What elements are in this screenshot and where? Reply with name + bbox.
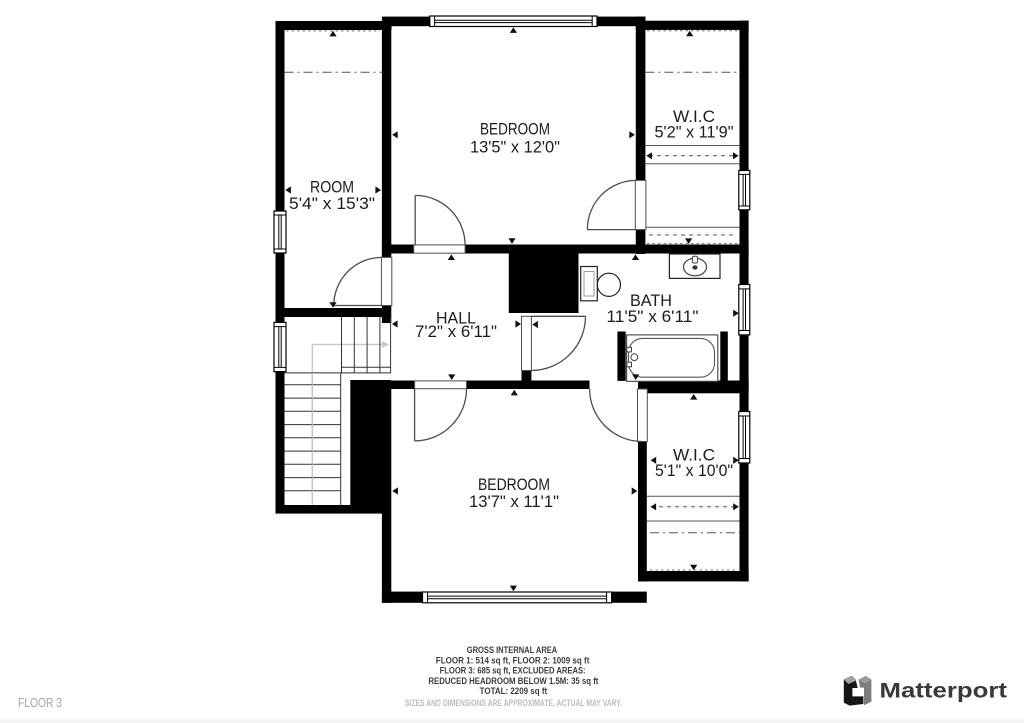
svg-text:ROOM: ROOM [310,179,354,197]
svg-text:5'2" x 11'9": 5'2" x 11'9" [655,124,734,142]
svg-text:FLOOR 3: 685 sq ft, EXCLUDED A: FLOOR 3: 685 sq ft, EXCLUDED AREAS: [440,666,586,676]
svg-text:11'5" x 6'11": 11'5" x 6'11" [607,308,699,326]
svg-text:5'4" x 15'3": 5'4" x 15'3" [289,195,375,213]
svg-text:SIZES AND DIMENSIONS ARE APPRO: SIZES AND DIMENSIONS ARE APPROXIMATE, AC… [405,698,622,708]
svg-text:FLOOR 3: FLOOR 3 [18,696,62,710]
svg-text:BEDROOM: BEDROOM [478,476,550,494]
svg-text:REDUCED HEADROOM BELOW 1.5M: 3: REDUCED HEADROOM BELOW 1.5M: 35 sq ft [428,676,598,686]
svg-text:FLOOR 1: 514 sq ft, FLOOR 2: 1: FLOOR 1: 514 sq ft, FLOOR 2: 1009 sq ft [436,655,590,665]
svg-text:5'1" x 10'0": 5'1" x 10'0" [655,462,733,480]
svg-text:GROSS INTERNAL AREA: GROSS INTERNAL AREA [467,645,558,655]
svg-text:7'2" x 6'11": 7'2" x 6'11" [415,323,497,341]
svg-text:13'7" x 11'1": 13'7" x 11'1" [469,493,559,511]
svg-text:13'5" x 12'0": 13'5" x 12'0" [470,139,560,157]
svg-text:Matterport: Matterport [880,679,1008,703]
svg-text:TOTAL: 2209 sq ft: TOTAL: 2209 sq ft [480,686,548,696]
svg-text:BEDROOM: BEDROOM [480,121,550,139]
